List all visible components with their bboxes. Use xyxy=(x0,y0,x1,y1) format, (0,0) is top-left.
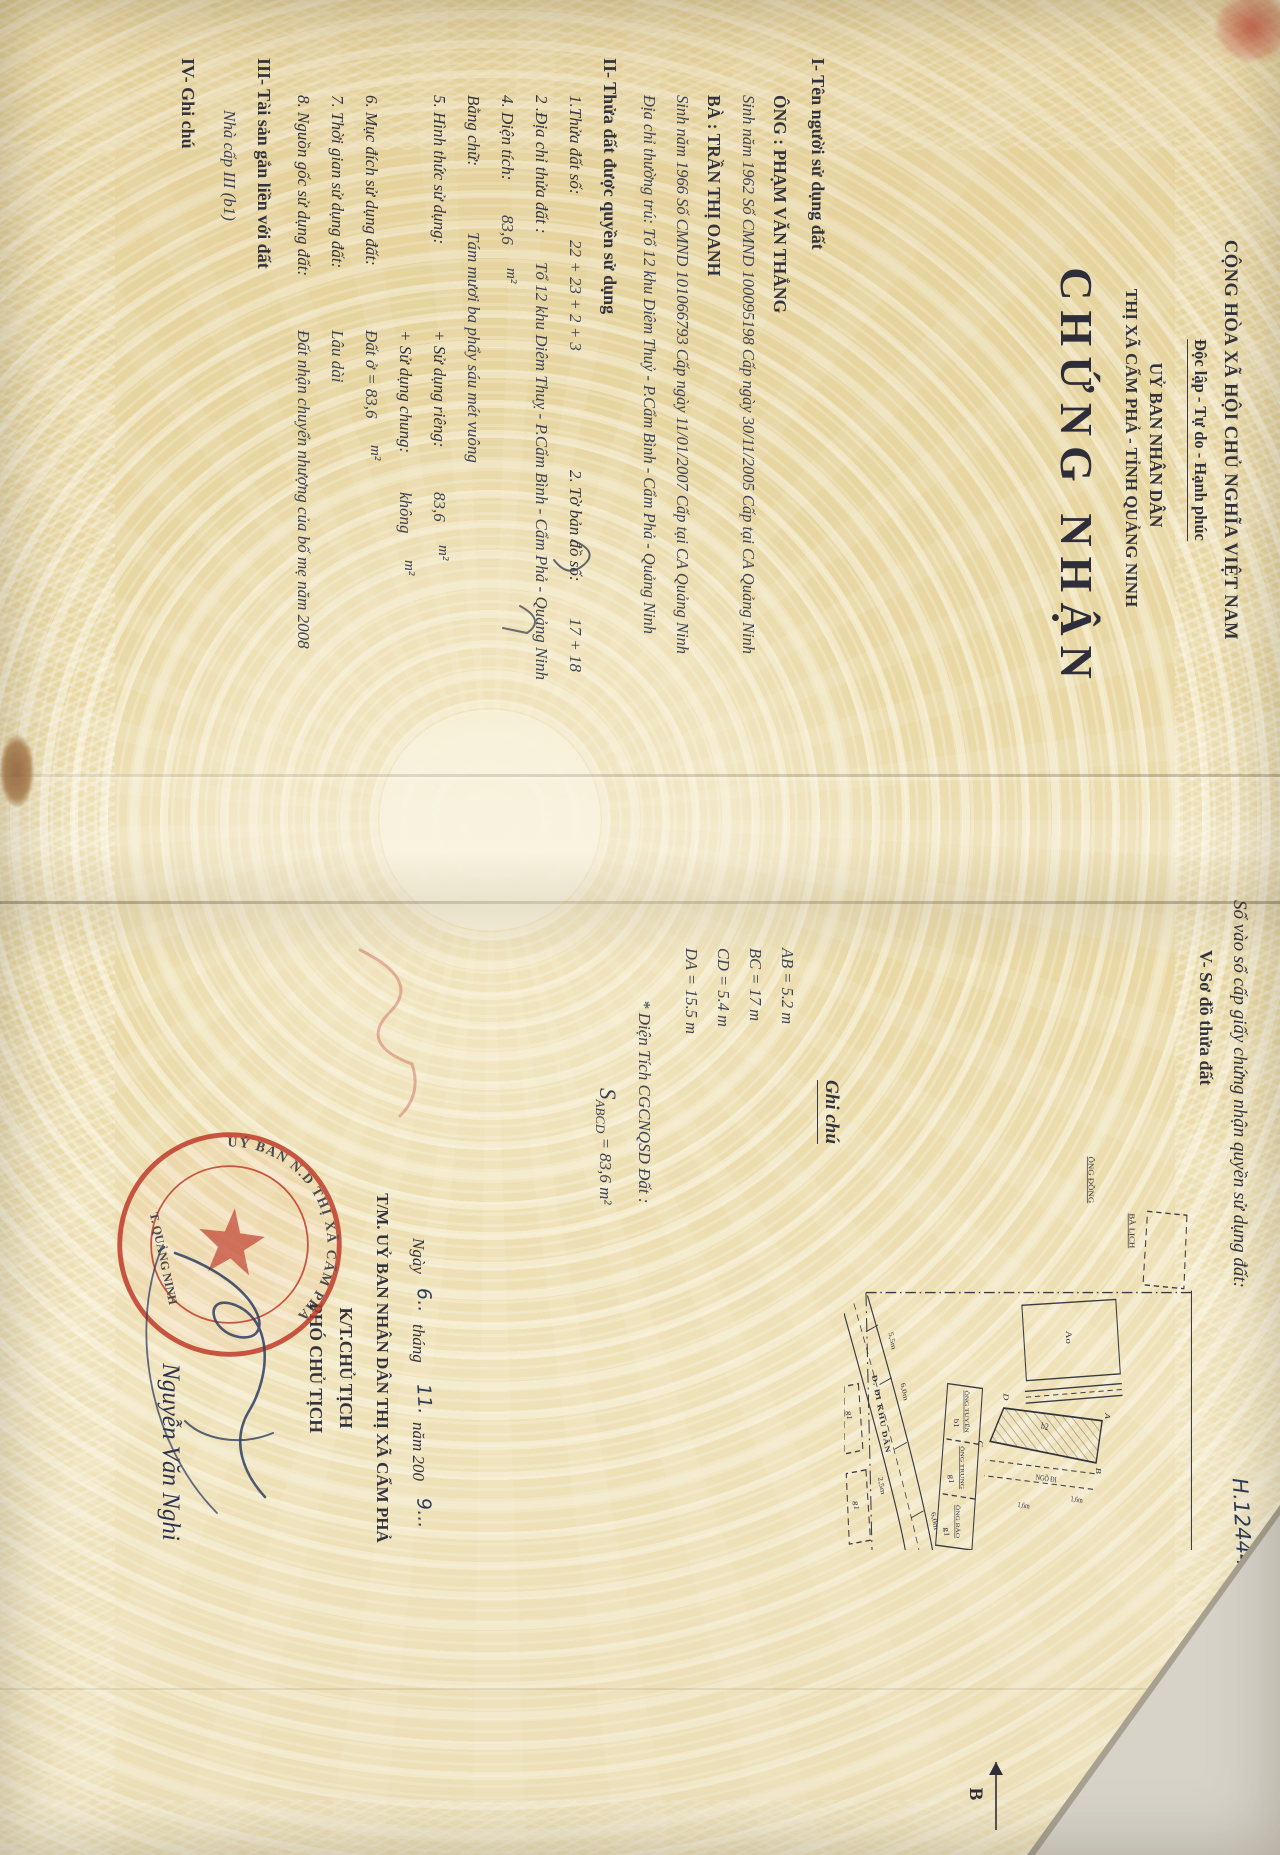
area-note-line: SABCD = 83,6 m² xyxy=(592,1088,620,1205)
red-corner-stain xyxy=(1215,0,1280,62)
brown-stain xyxy=(0,735,34,807)
area-note-value: = 83,6 m² xyxy=(596,1137,615,1204)
plot-g1d-label: g1 xyxy=(852,1501,860,1510)
area-label: 4. Diện tích: xyxy=(497,95,517,180)
private-use-unit: m² xyxy=(434,545,451,560)
owner-ong-bao-label: ÔNG BẢO xyxy=(954,1505,961,1538)
assets-value: Nhà cấp III (b1) xyxy=(219,110,239,221)
section5-heading: V- Sơ đồ thửa đất xyxy=(1195,950,1216,1085)
plot-g1c-label: g1 xyxy=(845,1411,853,1420)
common-use-value: không xyxy=(395,492,415,534)
date-word-ngay: Ngày xyxy=(408,1238,428,1274)
national-title: CỘNG HÒA XÃ HỘI CHỦ NGHĨA VIỆT NAM xyxy=(1219,240,1240,640)
signature-stroke xyxy=(175,1253,265,1497)
residence-address: Địa chỉ thường trú: Tổ 12 khu Diêm Thuỷ … xyxy=(639,95,658,634)
plot-b2-label: b2 xyxy=(1041,1420,1050,1433)
ink-mark xyxy=(503,606,535,633)
certificate-spread: CỘNG HÒA XÃ HỘI CHỦ NGHĨA VIỆT NAM Độc l… xyxy=(0,0,1280,1855)
dim-2-5m: 2,5m xyxy=(876,1476,887,1496)
section1-heading: I- Tên người sử dụng đất xyxy=(807,58,828,250)
wife-name: BÀ : TRẦN THỊ OANH xyxy=(704,95,724,276)
red-scribble xyxy=(315,935,455,1135)
husband-info: Sinh năm 1962 Số CMND 100095198 Cấp ngày… xyxy=(738,95,757,654)
use-form-label: 5. Hình thức sử dụng: xyxy=(429,95,449,244)
owner-ong-dong-label: ÔNG ĐỒNG xyxy=(1087,1157,1096,1204)
red-scribble-stroke xyxy=(360,950,415,1116)
husband-name: ÔNG : PHẠM VĂN THẮNG xyxy=(770,95,790,313)
behalf-line: T/M. UỶ BAN NHÂN DÂN THỊ XÃ CẨM PHẢ xyxy=(372,1193,392,1543)
private-use-value: 83,6 xyxy=(429,492,449,522)
purpose-value: Đất ở = 83,6 xyxy=(361,330,381,419)
owner-ba-lich-label: BÀ LỊCH xyxy=(1128,1213,1137,1248)
area-value: 83,6 xyxy=(497,215,517,245)
parcel-address-label: 2 .Địa chỉ thửa đất : xyxy=(531,95,551,234)
dim-cd: CD = 5.4 m xyxy=(713,948,732,1027)
fold-crease xyxy=(0,774,1280,777)
duration-label: 7. Thời gian sử dụng đất: xyxy=(327,95,347,268)
origin-label: 8. Nguồn gốc sử dụng đất: xyxy=(293,95,313,276)
date-word-thang: tháng xyxy=(408,1324,428,1363)
plot-g1a-label: g1 xyxy=(947,1475,955,1484)
private-use-label: + Sử dụng riêng: xyxy=(429,330,449,448)
corner-a: A xyxy=(1103,1412,1112,1420)
section3-heading: III- Tài sản gắn liền với đất xyxy=(253,58,274,269)
certificate-title: CHỨNG NHẬN xyxy=(1049,267,1102,689)
north-label: B xyxy=(965,1788,986,1801)
date-word-nam: năm 200 xyxy=(408,1422,428,1481)
road-label: Đ. ĐI KHU DÂN xyxy=(870,1374,892,1455)
area-unit: m² xyxy=(502,268,519,283)
issuer-line2: THỊ XÃ CẨM PHẢ - TỈNH QUẢNG NINH xyxy=(1121,289,1141,607)
plot-g1b-label: g1 xyxy=(943,1527,951,1536)
north-arrow: B xyxy=(958,1748,1028,1838)
area-note-subscript: ABCD xyxy=(593,1100,608,1134)
in-words-label: Bằng chữ: xyxy=(463,95,483,166)
lane-edge xyxy=(1025,1384,1122,1392)
handwritten-signature xyxy=(120,1225,335,1525)
corner-d: D xyxy=(1002,1392,1011,1401)
dim-5-5m: 5,5m xyxy=(887,1331,898,1351)
date-year: 9... xyxy=(411,1497,434,1528)
area-note-s: S xyxy=(595,1088,620,1100)
ink-mark xyxy=(554,540,590,571)
light-crease xyxy=(0,1688,1280,1690)
section4-heading: IV- Ghi chú xyxy=(177,58,198,149)
dim-da: DA = 15.5 m xyxy=(681,948,700,1034)
dim-ab: AB = 5.2 m xyxy=(777,948,796,1024)
date-day: 6.. xyxy=(412,1287,435,1312)
plot-ao-label: Ao xyxy=(1063,1331,1073,1344)
dim-6-0m-a: 6,0m xyxy=(899,1382,910,1402)
border-pattern-bottom xyxy=(0,140,115,1855)
common-use-label: + Sử dụng chung: xyxy=(395,330,415,453)
north-arrow-head xyxy=(989,1762,1003,1775)
corner-b: B xyxy=(1094,1468,1103,1475)
plot-ba-lich xyxy=(1143,1211,1187,1288)
registry-number-label: Số vào sổ cấp giấy chứng nhận quyền sử d… xyxy=(1228,900,1250,1288)
legend-heading: Ghi chú xyxy=(817,1080,842,1144)
in-words-value: Tám mươi ba phẩy sáu mét vuông xyxy=(463,232,483,463)
section2-heading: II- Thửa đất được quyền sử dụng xyxy=(599,58,620,314)
wife-info: Sinh năm 1966 Số CMND 101066793 Cấp ngày… xyxy=(672,95,691,654)
area-note-label: * Diện Tích CGCNQSD Đất : xyxy=(634,1000,654,1204)
alley-edge xyxy=(986,1460,1095,1474)
signature-underline xyxy=(146,1245,217,1513)
dim-1-6m-a: 1,6m xyxy=(1070,1494,1083,1505)
origin-value: Đất nhận chuyển nhượng của bố mẹ năm 200… xyxy=(293,330,313,649)
dim-1-6m-b: 1,6m xyxy=(1017,1500,1030,1511)
duration-value: Lâu dài xyxy=(327,330,347,382)
plot-divider xyxy=(939,1493,975,1499)
certified-plot-abcd xyxy=(990,1408,1102,1463)
parcel-no-label: 1.Thửa đất số: xyxy=(565,95,585,194)
national-motto: Độc lập - Tự do - Hạnh phúc xyxy=(1187,339,1209,541)
owner-ong-trung-label: ÔNG TRUNG xyxy=(959,1446,966,1489)
dim-bc: BC = 17 m xyxy=(745,948,764,1021)
date-month: 11. xyxy=(411,1383,434,1414)
road-edge xyxy=(867,1296,932,1550)
parcel-no-value: 22 + 23 + 2 + 3 xyxy=(565,240,585,351)
issuer-line1: UỶ BAN NHÂN DÂN xyxy=(1146,363,1166,528)
owner-ong-tuyen-label: ÔNG TUYẾN xyxy=(963,1390,970,1433)
plot-divider xyxy=(943,1438,979,1444)
cadastral-map: BÀ LỊCH ÔNG ĐỒNG Ao A B C D b2 NGÕ ĐI 1,… xyxy=(844,1090,1196,1550)
plot-b1-label: b1 xyxy=(952,1419,960,1428)
purpose-label: 6. Mục đích sử dụng đất: xyxy=(361,95,381,266)
ink-annotation-marks xyxy=(480,518,620,668)
page-gutter xyxy=(0,901,1280,904)
frontage-ticks xyxy=(866,1325,924,1518)
signature-stroke xyxy=(185,1421,273,1440)
scanned-land-certificate: CỘNG HÒA XÃ HỘI CHỦ NGHĨA VIỆT NAM Độc l… xyxy=(0,0,1280,1855)
purpose-unit: m² xyxy=(366,445,383,460)
common-use-unit: m² xyxy=(400,560,417,575)
